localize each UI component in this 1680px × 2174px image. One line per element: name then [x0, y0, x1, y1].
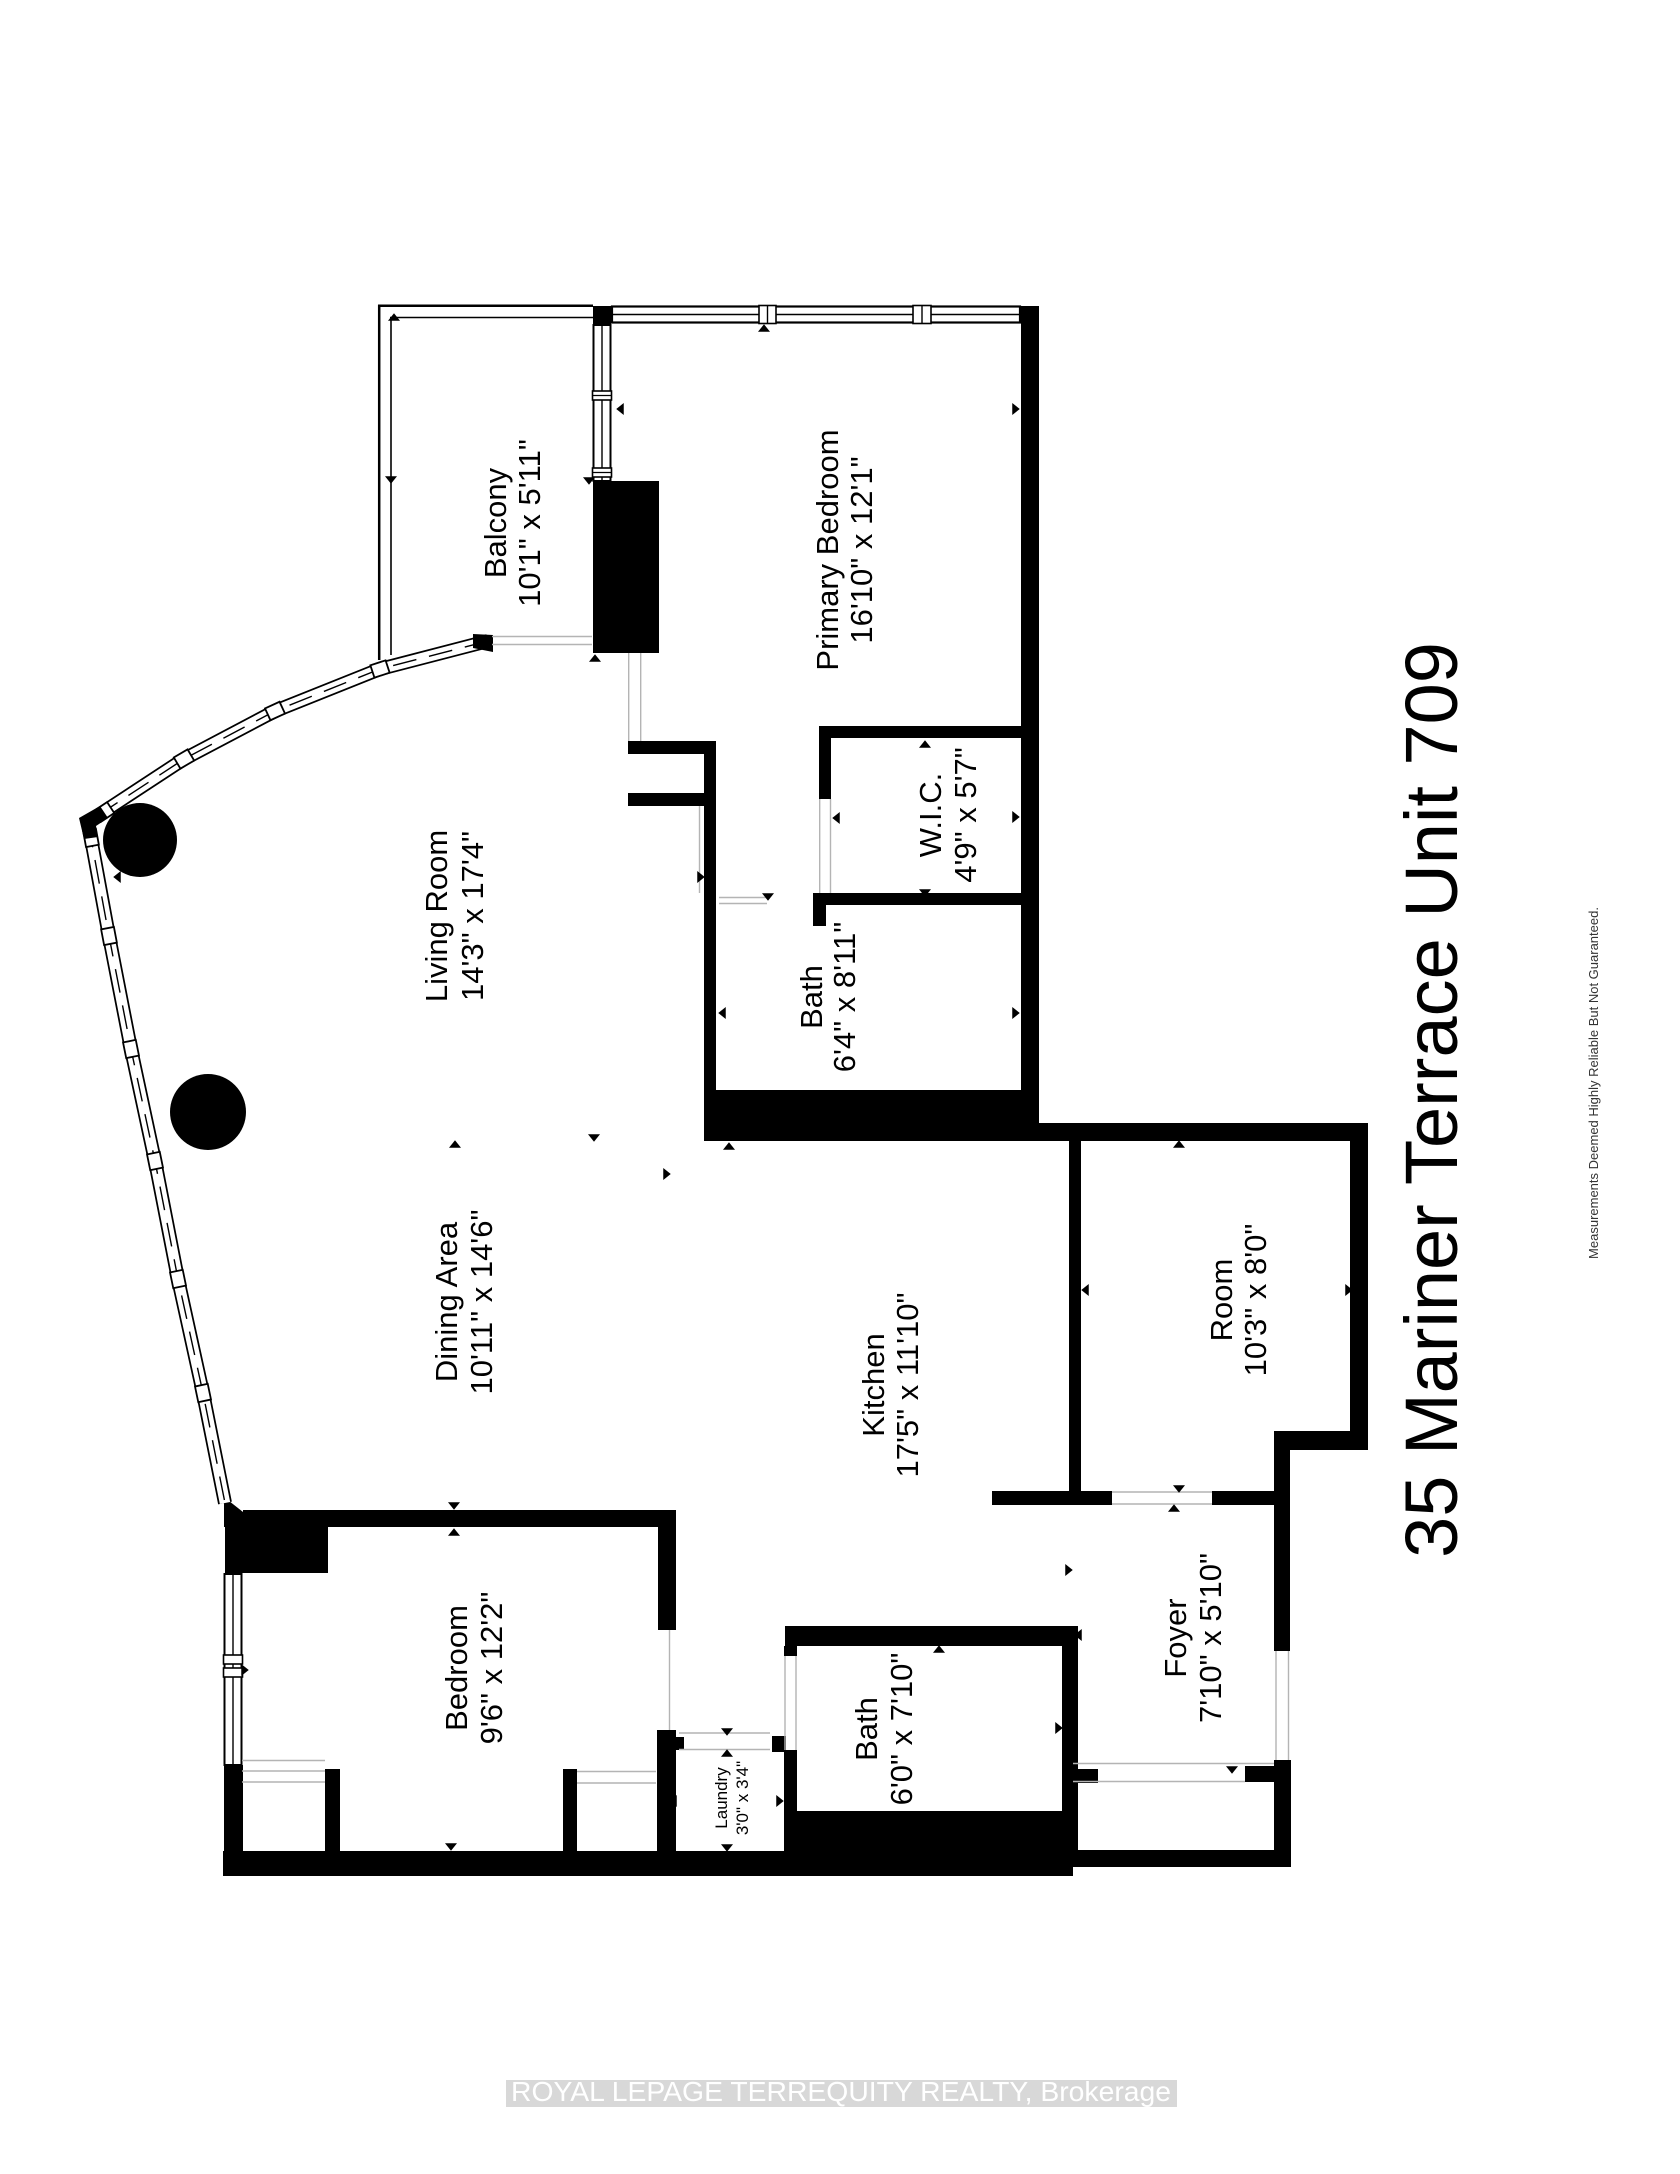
svg-text:10'11" x 14'6": 10'11" x 14'6" [464, 1210, 499, 1395]
svg-text:17'5" x 11'10": 17'5" x 11'10" [890, 1293, 925, 1478]
svg-text:9'6" x 12'2": 9'6" x 12'2" [474, 1592, 509, 1745]
svg-text:6'4" x 8'11": 6'4" x 8'11" [827, 922, 862, 1072]
svg-text:Dining Area: Dining Area [429, 1221, 464, 1382]
svg-text:Balcony: Balcony [478, 467, 513, 578]
svg-text:14'3" x 17'4": 14'3" x 17'4" [455, 831, 490, 1001]
svg-text:W.I.C.: W.I.C. [913, 773, 948, 857]
svg-text:Bath: Bath [849, 1697, 884, 1761]
svg-text:6'0" x 7'10": 6'0" x 7'10" [884, 1653, 919, 1806]
svg-text:Bedroom: Bedroom [439, 1605, 474, 1731]
svg-text:Primary Bedroom: Primary Bedroom [810, 429, 845, 670]
svg-text:10'1" x 5'11": 10'1" x 5'11" [512, 439, 547, 607]
svg-text:Living Room: Living Room [419, 830, 454, 1002]
svg-text:4'9" x 5'7": 4'9" x 5'7" [948, 747, 983, 883]
svg-text:3'0" x 3'4": 3'0" x 3'4" [733, 1761, 752, 1835]
svg-text:16'10" x 12'1": 16'10" x 12'1" [844, 456, 879, 643]
svg-text:ROYAL LEPAGE TERREQUITY REALTY: ROYAL LEPAGE TERREQUITY REALTY, Brokerag… [511, 2076, 1171, 2107]
svg-text:Bath: Bath [794, 965, 829, 1029]
svg-text:Laundry: Laundry [712, 1767, 731, 1829]
svg-text:Foyer: Foyer [1158, 1598, 1193, 1677]
svg-text:Kitchen: Kitchen [856, 1333, 891, 1436]
svg-text:35 Mariner Terrace Unit 709: 35 Mariner Terrace Unit 709 [1390, 642, 1473, 1558]
svg-text:7'10" x 5'10": 7'10" x 5'10" [1193, 1553, 1228, 1723]
svg-text:10'3" x 8'0": 10'3" x 8'0" [1238, 1224, 1273, 1377]
svg-text:Room: Room [1204, 1259, 1239, 1342]
svg-text:Measurements Deemed Highly Rel: Measurements Deemed Highly Reliable But … [1586, 907, 1601, 1259]
